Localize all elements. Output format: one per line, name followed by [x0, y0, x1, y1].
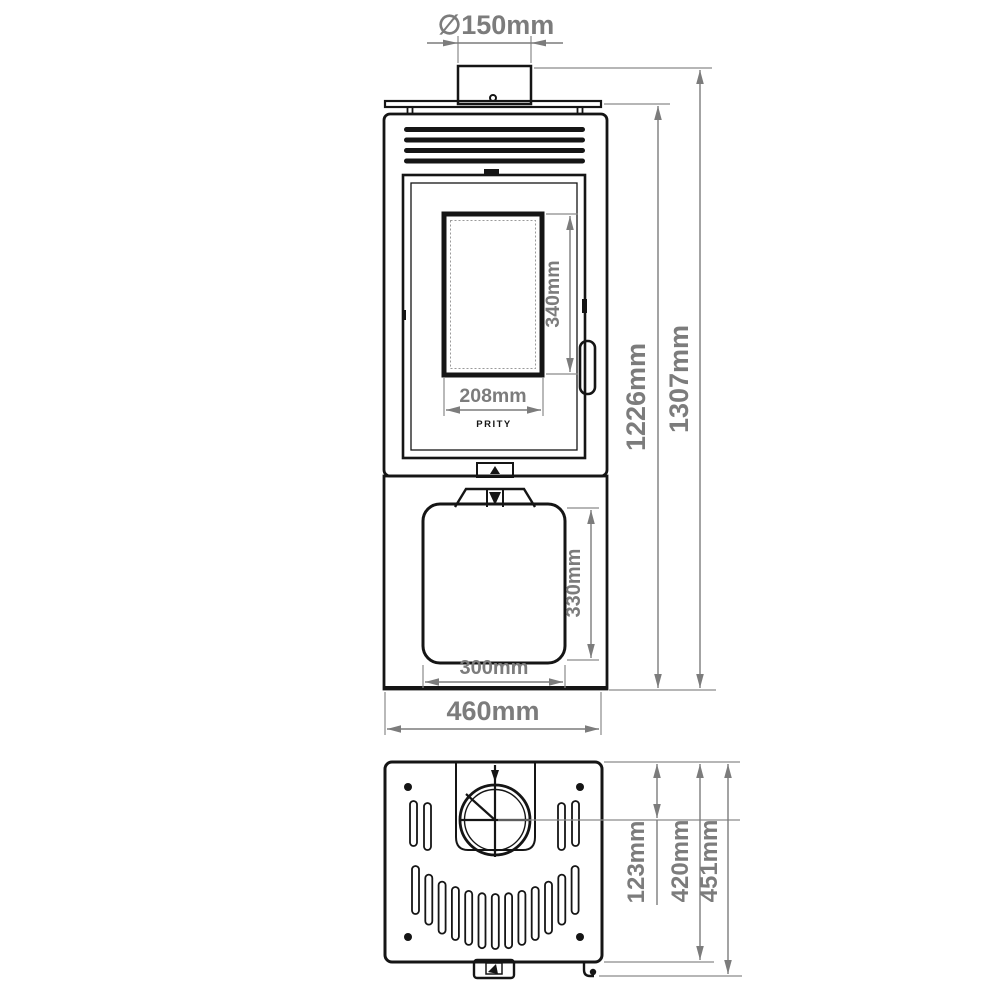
dim-overall-width: 460mm — [385, 692, 601, 735]
stove-technical-drawing: PRITY — [0, 0, 1000, 1000]
stove-technical-drawing-page: PRITY — [0, 0, 1000, 1000]
flue-pipe — [458, 66, 531, 104]
dim-label-flue-center-offset: 123mm — [623, 821, 650, 904]
damper-lever — [466, 794, 495, 820]
dim-label-depth-body: 420mm — [667, 820, 694, 903]
dim-label-lower-door-height: 330mm — [563, 549, 585, 618]
door-lock-mark — [582, 299, 587, 313]
dim-label-body-height: 1226mm — [621, 343, 651, 451]
dim-flue-diameter: ∅150mm — [427, 10, 563, 63]
glass-gasket — [451, 221, 536, 369]
dim-label-glass-width: 208mm — [459, 385, 526, 407]
dim-lower-door-height: 330mm — [563, 508, 599, 660]
door-top-latch — [484, 169, 499, 176]
dim-label-depth-total: 451mm — [696, 820, 723, 903]
dim-label-overall-width: 460mm — [446, 696, 539, 726]
dim-glass-width: 208mm — [444, 378, 543, 416]
dim-body-height: 1226mm — [604, 104, 670, 688]
pedestal-door — [423, 504, 565, 663]
top-plate-outline — [385, 762, 602, 962]
dim-label-total-height: 1307mm — [664, 325, 694, 433]
dim-label-glass-height: 340mm — [542, 260, 564, 327]
rear-hook — [584, 962, 596, 976]
flue-collar — [460, 765, 530, 857]
damper-pointer — [491, 770, 499, 782]
arc-vent-slots — [412, 866, 579, 949]
brand-logo: PRITY — [476, 419, 511, 430]
door-handle — [580, 341, 595, 394]
dim-glass-height: 340mm — [542, 214, 578, 374]
door-hinge-left — [402, 310, 406, 320]
vent-slats — [404, 127, 585, 164]
dimension-annotations: ∅150mm 340mm 208mm 1226mm 1307mm — [385, 10, 742, 976]
dim-label-lower-door-width: 300mm — [460, 657, 529, 679]
top-view — [385, 762, 602, 978]
dim-label-flue-diameter: ∅150mm — [438, 10, 555, 40]
door-glass — [444, 214, 542, 375]
